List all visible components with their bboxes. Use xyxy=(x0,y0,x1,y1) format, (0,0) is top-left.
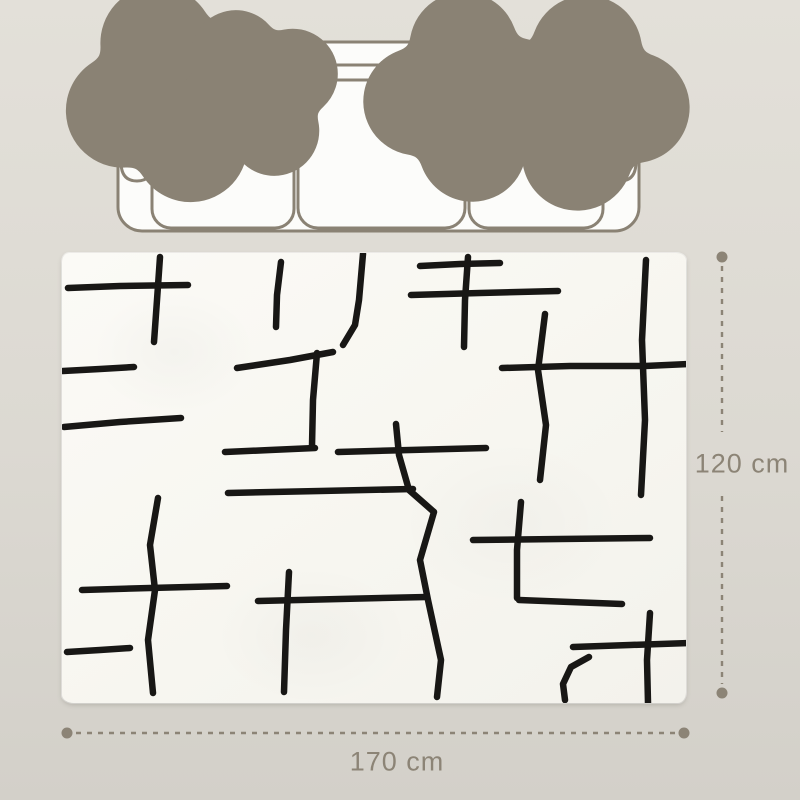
dimension-annotations xyxy=(0,0,800,800)
dimension-endpoint-dot xyxy=(679,728,690,739)
dimension-endpoint-dot xyxy=(62,728,73,739)
product-dimension-diagram: 120 cm 170 cm xyxy=(0,0,800,800)
width-dimension-line xyxy=(62,728,690,739)
dimension-endpoint-dot xyxy=(717,688,728,699)
height-dimension-label: 120 cm xyxy=(695,449,790,480)
dimension-endpoint-dot xyxy=(717,252,728,263)
width-dimension-label: 170 cm xyxy=(350,747,445,778)
